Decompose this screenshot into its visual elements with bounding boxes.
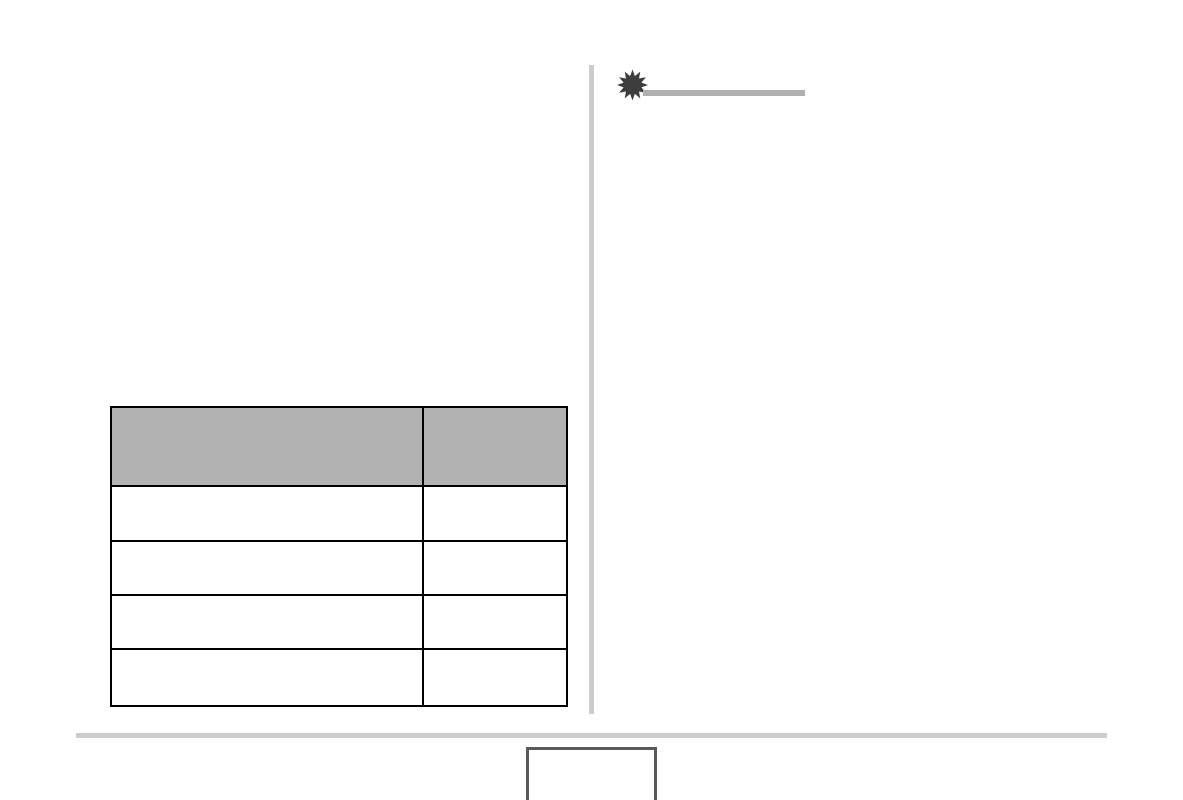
note-header-rule	[643, 90, 805, 96]
table-header-value	[423, 407, 567, 486]
table-cell-value	[423, 649, 567, 706]
table-cell-value	[423, 486, 567, 541]
table-cell-item	[111, 649, 423, 706]
table-row	[111, 595, 567, 649]
table-cell-value	[423, 595, 567, 649]
table-header-item	[111, 407, 423, 486]
table-cell-item	[111, 486, 423, 541]
page-number-box	[526, 747, 657, 800]
footer-rule	[76, 733, 1107, 738]
table-row	[111, 486, 567, 541]
table-cell-item	[111, 595, 423, 649]
table-row	[111, 541, 567, 595]
column-divider	[589, 65, 594, 714]
spec-table	[110, 406, 568, 707]
table-row	[111, 649, 567, 706]
starburst-icon	[617, 68, 648, 102]
table-cell-item	[111, 541, 423, 595]
manual-page	[0, 0, 1183, 800]
table-cell-value	[423, 541, 567, 595]
table-header-row	[111, 407, 567, 486]
